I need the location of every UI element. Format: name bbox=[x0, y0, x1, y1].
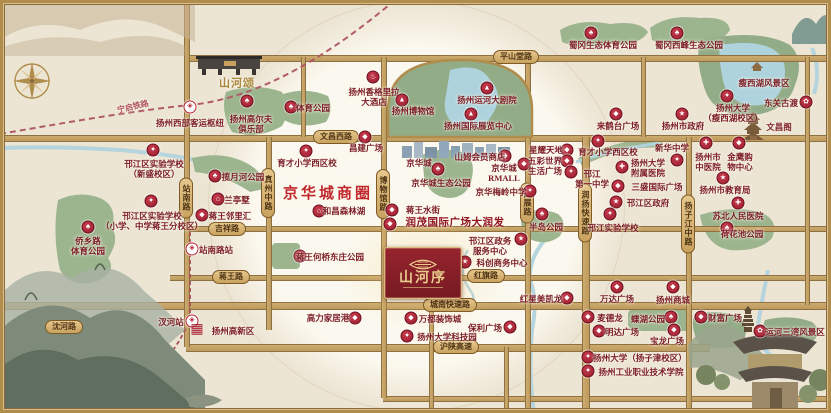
gov-icon: ★ bbox=[610, 196, 623, 209]
project-lens-icon bbox=[408, 258, 438, 271]
landmark-label: 蒋王何桥东庄公园 bbox=[296, 252, 364, 262]
landmark-label: 宝龙广场 bbox=[650, 336, 684, 346]
landmark-label: 邗江区政府 bbox=[627, 198, 670, 208]
mall-icon: ◆ bbox=[610, 108, 623, 121]
landmark-label: 五彩世界 生活广场 bbox=[528, 156, 562, 176]
landmark-label: 保利广场 bbox=[468, 323, 502, 333]
road-label: 沈河路 bbox=[45, 320, 83, 334]
landmark-label: 邗江区政务 服务中心 bbox=[469, 236, 512, 256]
landmark-label: 万都装饰城 bbox=[419, 314, 462, 324]
project-name: 山河序 bbox=[399, 272, 447, 286]
landmark-label: 育才小学西区校 bbox=[277, 158, 337, 168]
landmark-label: 运河三湾风景区 bbox=[765, 327, 825, 337]
hospital-icon: ✚ bbox=[616, 161, 629, 174]
landmark-label: 扬州国际展览中心 bbox=[444, 121, 512, 131]
road-label: 平山堂路 bbox=[493, 50, 539, 64]
park-icon: ♣ bbox=[209, 170, 222, 183]
metro-icon: ◈ bbox=[186, 243, 199, 256]
landmark-label: 扬州市政府 bbox=[662, 121, 705, 131]
landmark-label: 京华城生态公园 bbox=[411, 178, 471, 188]
landmark-label: 扬州高新区 bbox=[212, 326, 255, 336]
hotel-icon: ♨ bbox=[367, 71, 380, 84]
culture-icon: ▲ bbox=[465, 108, 478, 121]
landmark-label: 侨乡路 体育公园 bbox=[71, 236, 105, 256]
road-label: 沪陕高速 bbox=[433, 340, 479, 354]
mall-icon: ◆ bbox=[386, 204, 399, 217]
park-icon: ♣ bbox=[671, 27, 684, 40]
landmark-label: 扬州大学（扬子津校区） bbox=[593, 353, 687, 363]
hospital-icon: ✚ bbox=[732, 197, 745, 210]
park-icon: ♣ bbox=[82, 221, 95, 234]
landmark-label: 蜀冈生态体育公园 bbox=[569, 40, 637, 50]
landmark-label: 揽月河公园 bbox=[222, 172, 265, 182]
landmark-label: 扬州西部客运枢纽 bbox=[156, 118, 224, 128]
mall-icon: ◆ bbox=[612, 180, 625, 193]
landmark-label: 金鹰购 物中心 bbox=[727, 152, 753, 172]
landmark-label: 扬州运河大剧院 bbox=[457, 95, 517, 105]
landmark-label: 京华城 bbox=[406, 158, 432, 168]
mall-icon: ◆ bbox=[582, 311, 595, 324]
landmark-label: 财富广场 bbox=[708, 313, 742, 323]
project-divider bbox=[403, 287, 443, 288]
landmark-label: 京华梅岭中学 bbox=[475, 187, 526, 197]
landmark-label: 扬州市 中医院 bbox=[695, 152, 721, 172]
landmark-label: 扬州博物馆 bbox=[392, 106, 435, 116]
school-icon: ✦ bbox=[147, 144, 160, 157]
road-label: 吉祥路 bbox=[208, 222, 246, 236]
landmark-label: 山姆会员商店 bbox=[454, 152, 505, 162]
park-icon: ♣ bbox=[665, 311, 678, 324]
park-icon: ♣ bbox=[241, 95, 254, 108]
landmark-label: 扬州市教育局 bbox=[699, 185, 750, 195]
landmark-label: 邗江 第一中学 bbox=[575, 169, 609, 189]
landmark-label: 明达广场 bbox=[605, 327, 639, 337]
mall-icon: ◆ bbox=[733, 137, 746, 150]
business-circle-label: 京华城商圈 bbox=[283, 185, 373, 203]
school-icon: ✦ bbox=[604, 208, 617, 221]
landmark-label: 星耀天地 bbox=[529, 145, 563, 155]
landmark-label: 扬州工业职业技术学院 bbox=[598, 367, 683, 377]
landmark-label: 京华城 RMALL bbox=[488, 163, 520, 183]
school-icon: ✦ bbox=[721, 90, 734, 103]
landmark-label: 瘦西湖风景区 bbox=[738, 78, 789, 88]
landmark-label: 东关古渡 bbox=[764, 98, 798, 108]
school-icon: ✦ bbox=[592, 135, 605, 148]
landmark-label: 和昌森林湖 bbox=[323, 206, 366, 216]
landmark-label: 文昌阁 bbox=[766, 122, 792, 132]
park-icon: ♣ bbox=[585, 27, 598, 40]
mall-icon: ◆ bbox=[695, 311, 708, 324]
landmark-label: 蒋王邻里汇 bbox=[209, 211, 252, 221]
project-logo: 山河序 bbox=[384, 247, 462, 299]
metro-icon: ◈ bbox=[184, 101, 197, 114]
landmark-label: 蝶湖公园 bbox=[631, 314, 665, 324]
gov-icon: ★ bbox=[717, 172, 730, 185]
landmark-label: 邗江区实验学校 （小学、中学蒋王分校区） bbox=[101, 211, 203, 231]
hospital-icon: ✚ bbox=[700, 137, 713, 150]
landmark-label: 蒋王水街 bbox=[406, 205, 440, 215]
mall-icon: ◆ bbox=[667, 281, 680, 294]
sister-project-label: 山河颂 bbox=[219, 77, 255, 90]
landmark-label: 扬州大学科技园 bbox=[417, 332, 477, 342]
landmark-label: 荷花池公园 bbox=[721, 229, 764, 239]
landmark-label: 科创商务中心 bbox=[476, 258, 527, 268]
landmark-label: 苏北人民医院 bbox=[712, 211, 763, 221]
landmark-label: 万达广场 bbox=[600, 294, 634, 304]
landmark-label: 润茂国际广场大润发 bbox=[406, 218, 505, 231]
mall-icon: ◆ bbox=[668, 324, 681, 337]
scenic-icon: ✿ bbox=[800, 96, 813, 109]
mall-icon: ◆ bbox=[405, 312, 418, 325]
mall-icon: ◆ bbox=[593, 325, 606, 338]
residence-icon: ⌂ bbox=[212, 193, 225, 206]
landmark-label: 扬州大学 （瘦西湖校区） bbox=[703, 103, 763, 123]
road-label: 润扬快速路 bbox=[578, 184, 592, 243]
school-icon: ✦ bbox=[671, 154, 684, 167]
hq-icon: ▦ bbox=[190, 323, 204, 337]
landmark-label: 邗江实验学校 bbox=[587, 223, 638, 233]
school-icon: ✦ bbox=[300, 145, 313, 158]
landmark-label: 汊河站 bbox=[158, 317, 184, 327]
landmark-label: 三盛国际广场 bbox=[631, 182, 682, 192]
park-icon: ♣ bbox=[432, 163, 445, 176]
location-map: 宁扬城际（规划中） bbox=[0, 0, 831, 413]
gov-icon: ★ bbox=[515, 233, 528, 246]
road-label: 城南快速路 bbox=[423, 298, 477, 312]
markers-layer: 平山堂路文昌西路吉祥路蒋王路红旗路城南快速路沪陕高速沈河路站南路真州中路博物馆路… bbox=[0, 0, 831, 413]
landmark-label: 扬州高尔夫 俱乐部 bbox=[230, 114, 273, 134]
landmark-label: 育才小学西区校 bbox=[578, 147, 638, 157]
landmark-label: 麦德龙 bbox=[597, 313, 623, 323]
mall-icon: ◆ bbox=[359, 131, 372, 144]
road-label: 红旗路 bbox=[467, 269, 505, 283]
landmark-label: 来鹤台广场 bbox=[597, 121, 640, 131]
landmark-label: 蜀冈西峰生态公园 bbox=[655, 40, 723, 50]
culture-icon: ▲ bbox=[481, 82, 494, 95]
park-icon: ♣ bbox=[536, 208, 549, 221]
road-label: 文昌西路 bbox=[313, 130, 359, 144]
landmark-label: 扬州商城 bbox=[656, 295, 690, 305]
culture-icon: ▲ bbox=[396, 94, 409, 107]
mall-icon: ◆ bbox=[349, 312, 362, 325]
landmark-label: 站南路站 bbox=[199, 245, 233, 255]
landmark-label: 扬州香格里拉 大酒店 bbox=[348, 87, 399, 107]
landmark-label: 高力家居港 bbox=[307, 313, 350, 323]
mall-icon: ◆ bbox=[504, 321, 517, 334]
school-icon: ✦ bbox=[582, 365, 595, 378]
landmark-label: 邗江区实验学校 （新盛校区） bbox=[124, 159, 184, 179]
school-icon: ✦ bbox=[401, 330, 414, 343]
landmark-label: 新华中学 bbox=[655, 143, 689, 153]
school-icon: ✦ bbox=[145, 195, 158, 208]
road-label: 扬子江中路 bbox=[681, 195, 695, 254]
mall-icon: ◆ bbox=[384, 218, 397, 231]
landmark-label: 兰亭墅 bbox=[224, 195, 250, 205]
mall-icon: ◆ bbox=[611, 281, 624, 294]
landmark-label: 红星美凯龙 bbox=[520, 294, 563, 304]
landmark-label: 体育公园 bbox=[296, 103, 330, 113]
gov-icon: ★ bbox=[676, 108, 689, 121]
landmark-label: 半岛公园 bbox=[529, 222, 563, 232]
landmark-label: 昌建广场 bbox=[349, 143, 383, 153]
landmark-label: 扬州大学 附属医院 bbox=[631, 158, 665, 178]
road-label: 蒋王路 bbox=[212, 270, 250, 284]
